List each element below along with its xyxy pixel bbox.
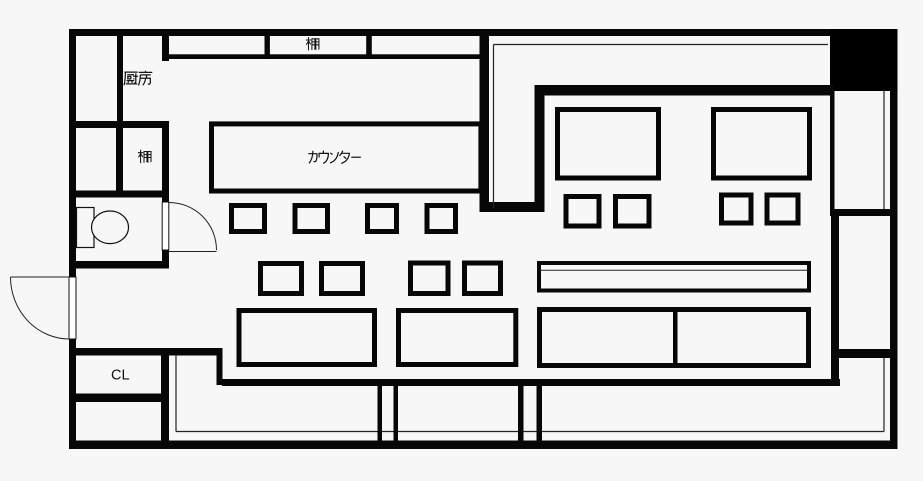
svg-text:CL: CL: [111, 367, 130, 383]
